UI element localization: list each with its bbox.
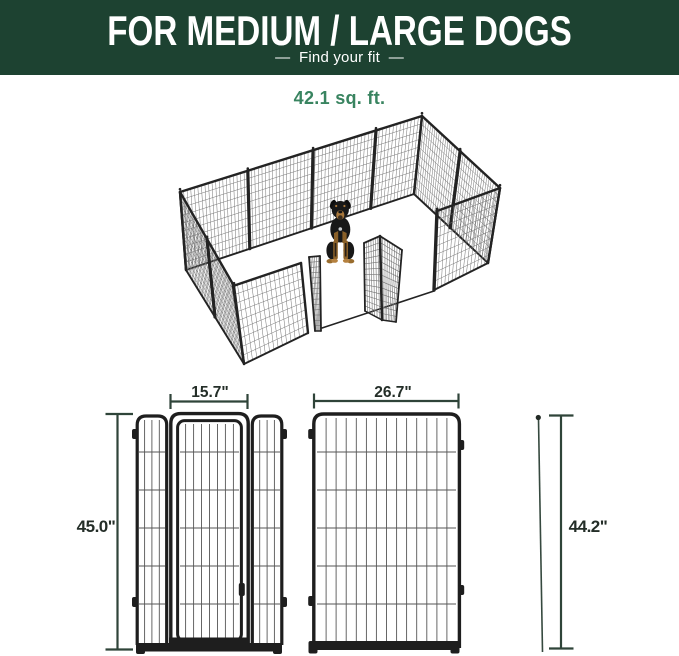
svg-text:15.7": 15.7" [191,384,229,401]
svg-text:45.0": 45.0" [77,517,116,536]
svg-text:44.2": 44.2" [569,517,608,536]
svg-text:26.7": 26.7" [374,384,412,401]
